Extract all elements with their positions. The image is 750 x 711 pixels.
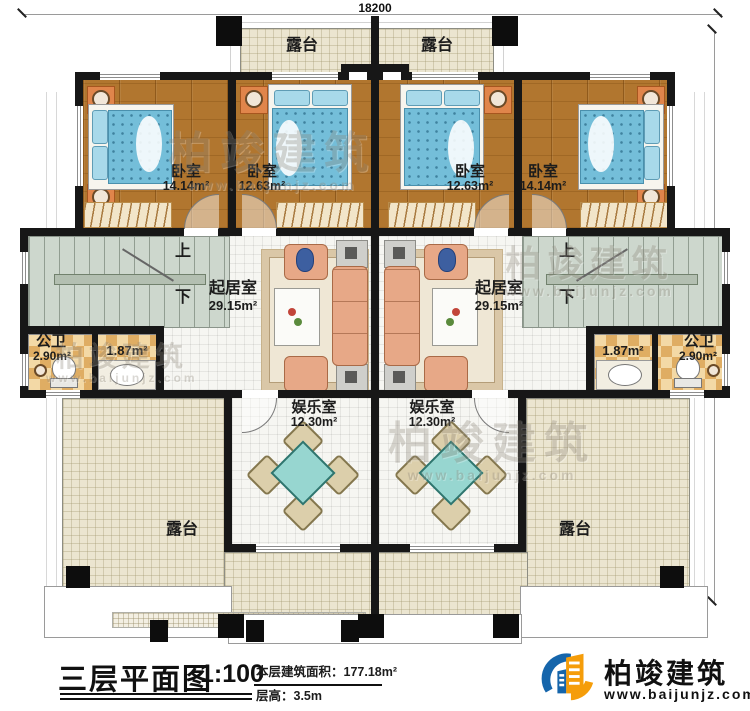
column: [246, 620, 264, 642]
watermark: 柏竣建筑 www.baijunjz.com: [46, 342, 198, 385]
pillow-icon: [92, 110, 108, 144]
door-opening: [472, 390, 508, 398]
column: [493, 614, 519, 638]
armchair-icon: [424, 356, 468, 392]
column: [216, 16, 242, 46]
floor-area-label: 本层建筑面积：177.18m²: [256, 666, 396, 679]
parapet-band: [520, 586, 708, 638]
side-table-icon: [393, 371, 405, 383]
door-opening: [474, 228, 508, 236]
living-left-label: 起居室: [197, 281, 269, 297]
stair-left-up-label: 上: [172, 244, 194, 260]
wall: [341, 64, 409, 72]
pillow-icon: [274, 90, 310, 106]
title-underline: [60, 698, 252, 700]
window: [590, 72, 650, 80]
dimension-top-value: 18200: [345, 1, 405, 15]
lamp-icon: [245, 90, 263, 108]
light-icon: [707, 364, 720, 377]
person-icon: [438, 248, 456, 272]
watermark-url: www.baijunjz.com: [388, 468, 596, 483]
watermark-text: 柏竣建筑: [388, 420, 596, 468]
terrace-top-left-label: 露台: [272, 38, 332, 54]
window: [100, 72, 160, 80]
bedroom-4-label: 卧室: [508, 164, 578, 179]
wall: [371, 398, 379, 552]
terrace-bottom-left-floor: [62, 398, 226, 590]
wall: [224, 398, 232, 552]
entertainment-right-label: 娱乐室: [396, 400, 468, 415]
window: [670, 390, 704, 398]
rug-icon: [388, 202, 476, 228]
bath-right-area2: 1.87m²: [593, 344, 653, 357]
watermark-url: www.baijunjz.com: [505, 284, 674, 299]
pillow-icon: [644, 110, 660, 144]
watermark-url: www.baijunjz.com: [168, 178, 376, 193]
logo-icon: [540, 648, 598, 706]
column: [218, 614, 244, 638]
pillow-icon: [92, 146, 108, 180]
window: [256, 544, 340, 552]
wall: [652, 334, 658, 390]
bedroom-3-area: 12.63m²: [435, 180, 505, 193]
window: [75, 106, 83, 186]
watermark-text: 柏竣建筑: [168, 130, 376, 178]
wall: [371, 552, 379, 616]
entertainment-left-area: 12.30m²: [278, 416, 350, 429]
bedroom-3-label: 卧室: [435, 164, 505, 179]
living-right-area: 29.15m²: [463, 299, 535, 312]
flower-icon: [294, 318, 302, 326]
sofa-icon: [384, 266, 420, 366]
coffee-table-icon: [274, 288, 320, 346]
window: [722, 252, 730, 284]
column: [66, 566, 90, 588]
column: [358, 614, 384, 638]
watermark: 柏竣建筑 www.baijunjz.com: [168, 130, 376, 193]
blanket-icon: [588, 116, 614, 172]
title-underline: [60, 693, 252, 695]
armchair-icon: [284, 356, 328, 392]
living-left-area: 29.15m²: [197, 299, 269, 312]
window: [20, 252, 28, 284]
flower-icon: [446, 318, 454, 326]
entertainment-left-label: 娱乐室: [278, 400, 350, 415]
flower-icon: [452, 308, 460, 316]
lamp-icon: [489, 90, 507, 108]
dimension-tick: [17, 8, 27, 18]
watermark-text: 柏竣建筑: [505, 245, 674, 284]
terrace-bottom-right-label: 露台: [545, 522, 605, 538]
column: [150, 620, 168, 642]
stair-left-down-label: 下: [172, 290, 194, 306]
window: [383, 72, 401, 80]
side-table-icon: [345, 247, 357, 259]
dimension-tick: [713, 8, 723, 18]
wall: [514, 80, 522, 236]
window: [412, 72, 478, 80]
rug-icon: [276, 202, 364, 228]
window: [349, 72, 367, 80]
rug-icon: [580, 202, 668, 228]
toilet-icon: [674, 378, 702, 388]
floor-plan-canvas: 18200 15840: [0, 0, 750, 711]
column: [660, 566, 684, 588]
column: [341, 620, 359, 642]
pillow-icon: [444, 90, 480, 106]
window: [667, 106, 675, 186]
door-opening: [532, 228, 566, 236]
door-opening: [242, 228, 276, 236]
watermark: 柏竣建筑 www.baijunjz.com: [388, 420, 596, 483]
side-table-icon: [345, 371, 357, 383]
side-table-icon: [393, 247, 405, 259]
bath-right-label: 公卫: [669, 334, 729, 349]
person-icon: [296, 248, 314, 272]
sink-icon: [608, 364, 642, 386]
pillow-icon: [644, 146, 660, 180]
watermark-text: 柏竣建筑: [46, 342, 198, 372]
door-opening: [242, 390, 278, 398]
dimension-tick: [707, 596, 717, 606]
flower-icon: [288, 308, 296, 316]
watermark: 柏竣建筑 www.baijunjz.com: [505, 245, 674, 299]
stair-handrail: [54, 274, 206, 285]
dimension-tick: [707, 24, 717, 34]
column: [492, 16, 518, 46]
floor-height-label: 层高：3.5m: [256, 690, 376, 703]
window: [410, 544, 494, 552]
wall: [20, 228, 730, 236]
logo-url: www.baijunjz.com: [604, 686, 750, 702]
terrace-bottom-left-label: 露台: [152, 522, 212, 538]
plan-title: 三层平面图: [58, 656, 213, 698]
watermark-url: www.baijunjz.com: [46, 372, 198, 385]
pillow-icon: [312, 90, 348, 106]
rug-icon: [84, 202, 172, 228]
door-opening: [184, 228, 218, 236]
title-divider: [254, 684, 382, 686]
sofa-icon: [332, 266, 368, 366]
pillow-icon: [406, 90, 442, 106]
window: [46, 390, 80, 398]
bath-right-area: 2.90m²: [668, 350, 728, 362]
window: [272, 72, 338, 80]
bedroom-4-area: 14.14m²: [508, 180, 578, 193]
terrace-top-right-label: 露台: [407, 38, 467, 54]
